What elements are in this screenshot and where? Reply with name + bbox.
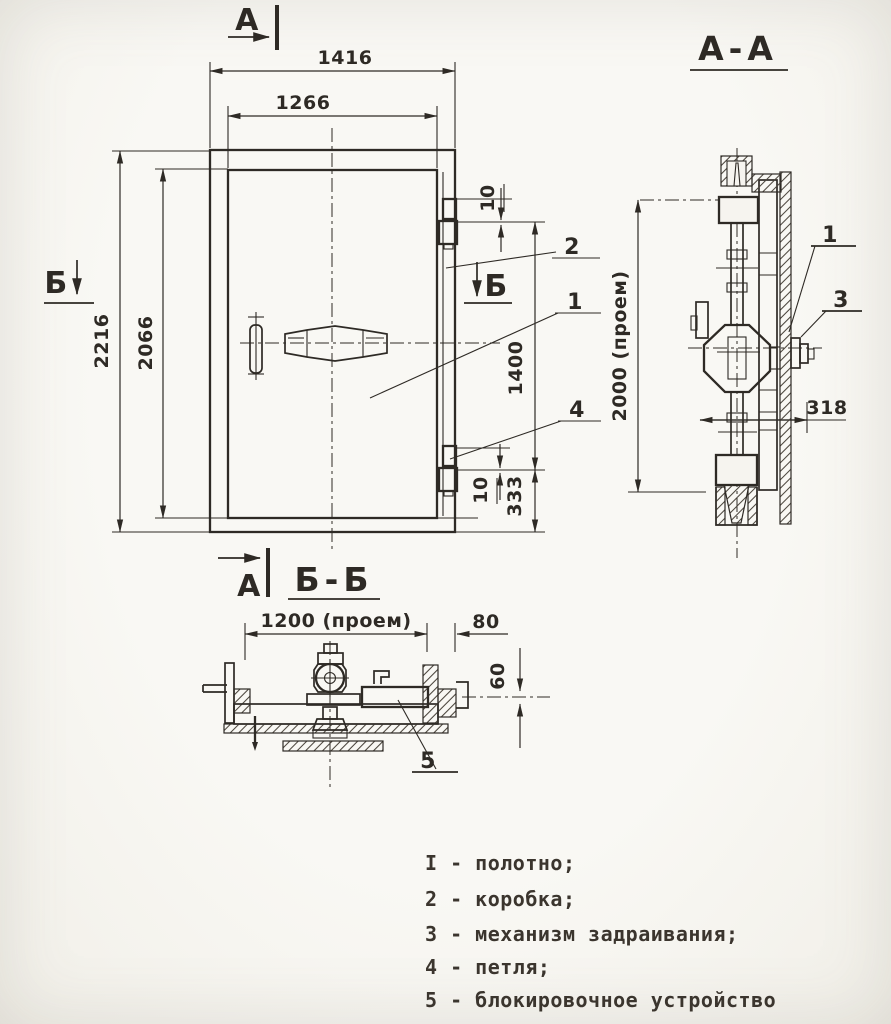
dim-frame-offset: 80: [457, 611, 508, 634]
outside-hub: [791, 338, 800, 368]
hook-catch: [374, 671, 389, 684]
extension-lines: [112, 62, 545, 532]
marker-b-left-label: Б: [44, 266, 67, 301]
dim-leaf-thickness-value: 60: [487, 662, 509, 689]
callout-aa-leaf-label: 1: [822, 223, 838, 248]
dim-hinge-span-value: 1400: [505, 341, 527, 396]
marker-a-top-label: А: [235, 3, 259, 38]
dim-opening-width-value: 1200 (проем): [260, 610, 411, 632]
callout-leaf-1: 1: [370, 290, 601, 398]
scanned-drawing-page: 1416 1266 2216 2066 10 1400: [0, 0, 891, 1024]
dim-hinge-bottom-gap-value: 10: [470, 476, 492, 503]
marker-a-bottom-label: А: [237, 569, 261, 604]
dim-hinge-top-gap: 10: [477, 184, 504, 252]
legend-item-4: 4 - петля;: [425, 955, 550, 979]
dim-opening-width: 1200 (проем): [245, 610, 455, 660]
leaf-sheet-section: [780, 172, 791, 524]
callout-mechanism-3: 3: [801, 288, 862, 337]
dim-hinge-bottom-offset: 333: [504, 470, 535, 532]
callout-aa-leaf-1: 1: [789, 223, 856, 332]
callout-hinge-4: 4: [450, 398, 601, 459]
marker-b-right-label: Б: [484, 269, 507, 304]
dim-leaf-width-value: 1266: [276, 92, 331, 114]
callout-hinge-label: 4: [569, 398, 585, 423]
dim-opening-height-value: 2000 (проем): [609, 270, 631, 421]
dim-opening-height: 2000 (проем): [609, 200, 742, 492]
dim-leaf-thickness: 60: [462, 648, 550, 748]
dim-hinge-bottom-offset-value: 333: [504, 475, 526, 516]
section-marker-b-right: Б: [464, 262, 512, 304]
section-aa-title: А-А: [690, 29, 788, 70]
front-view: 1416 1266 2216 2066 10 1400: [44, 3, 601, 604]
section-marker-a-bottom: А: [218, 548, 268, 604]
callout-lock-label: 5: [420, 749, 436, 774]
dim-leaf-height: 2066: [135, 169, 163, 518]
section-bb-title: Б-Б: [288, 560, 380, 599]
section-aa: А-А 2000 (проем) 318: [609, 29, 862, 558]
section-marker-a-top: А: [228, 3, 277, 50]
callout-frame-label: 2: [564, 235, 580, 260]
dim-frame-width-value: 1416: [318, 47, 373, 69]
dim-frame-height: 2216: [91, 151, 120, 532]
callout-mechanism-label: 3: [833, 288, 849, 313]
dim-hinge-top-gap-value: 10: [477, 184, 499, 211]
legend-item-2: 2 - коробка;: [425, 887, 576, 911]
callout-leaf-label: 1: [567, 290, 583, 315]
dim-frame-height-value: 2216: [91, 314, 113, 369]
dim-hinge-bottom-gap: 10: [470, 444, 500, 504]
section-aa-title-label: А-А: [698, 29, 778, 68]
section-bb-title-label: Б-Б: [294, 560, 373, 599]
door-handle: [248, 312, 387, 380]
section-marker-b-left: Б: [44, 260, 94, 303]
legend-item-1: I - полотно;: [425, 851, 576, 875]
technical-drawing: 1416 1266 2216 2066 10 1400: [0, 0, 891, 1024]
legend: I - полотно; 2 - коробка; 3 - механизм з…: [425, 851, 776, 1012]
dim-leaf-height-value: 2066: [135, 316, 157, 371]
callout-frame-2: 2: [446, 235, 600, 268]
dim-frame-offset-value: 80: [472, 611, 499, 633]
dim-leaf-width: 1266: [228, 92, 437, 116]
dim-depth-value: 318: [806, 397, 847, 419]
legend-item-3: 3 - механизм задраивания;: [425, 922, 739, 946]
dim-depth: 318: [700, 397, 848, 433]
section-aa-body: [691, 156, 814, 525]
legend-item-5: 5 - блокировочное устройство: [425, 988, 776, 1012]
dim-frame-width: 1416: [210, 47, 455, 71]
